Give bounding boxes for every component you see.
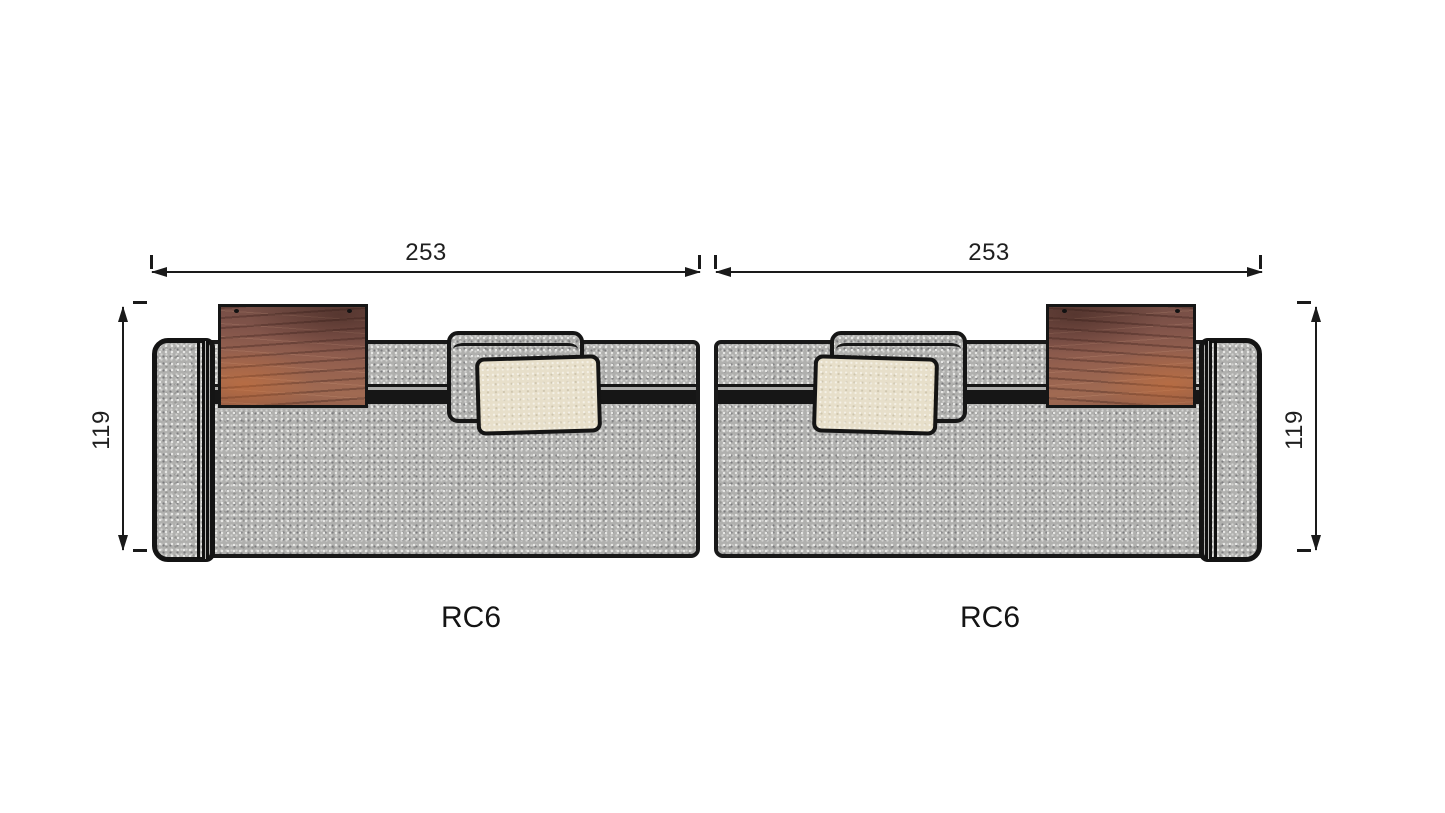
dim-tick-icon [133, 301, 147, 304]
wood-tray-panel [1046, 304, 1196, 408]
sofa-armrest [1199, 338, 1262, 562]
dim-arrow-left-icon [715, 267, 731, 277]
dim-arrow-left-icon [151, 267, 167, 277]
depth-dimension-label: 119 [1282, 390, 1308, 470]
tray-fastener-dot [347, 309, 352, 313]
depth-dimension-line [1315, 307, 1317, 550]
tray-fastener-dot [234, 309, 239, 313]
module-label: RC6 [940, 602, 1040, 634]
depth-dimension-line [122, 307, 124, 550]
armrest-piping [196, 341, 209, 559]
dim-tick-icon [698, 255, 701, 269]
sofa-module-left[interactable] [152, 304, 700, 562]
sofa-armrest [152, 338, 215, 562]
dim-tick-icon [1259, 255, 1262, 269]
drawing-canvas: 253 119 RC6 253 119 [0, 0, 1445, 813]
depth-dimension-label: 119 [89, 390, 115, 470]
dim-tick-icon [1297, 549, 1311, 552]
sofa-module-right[interactable] [714, 304, 1262, 562]
width-dimension-label: 253 [386, 240, 466, 266]
tray-fastener-dot [1175, 309, 1180, 313]
lumbar-pillow [475, 354, 602, 435]
dim-arrow-up-icon [1311, 306, 1321, 322]
dim-arrow-up-icon [118, 306, 128, 322]
dim-arrow-down-icon [1311, 535, 1321, 551]
dim-arrow-down-icon [118, 535, 128, 551]
dim-tick-icon [714, 255, 717, 269]
dim-tick-icon [133, 549, 147, 552]
dim-tick-icon [1297, 301, 1311, 304]
width-dimension-line [716, 271, 1262, 273]
module-label: RC6 [421, 602, 521, 634]
width-dimension-line [152, 271, 700, 273]
armrest-piping [1205, 341, 1218, 559]
lumbar-pillow [812, 354, 939, 435]
width-dimension-label: 253 [949, 240, 1029, 266]
tray-fastener-dot [1062, 309, 1067, 313]
dim-tick-icon [150, 255, 153, 269]
wood-tray-panel [218, 304, 368, 408]
